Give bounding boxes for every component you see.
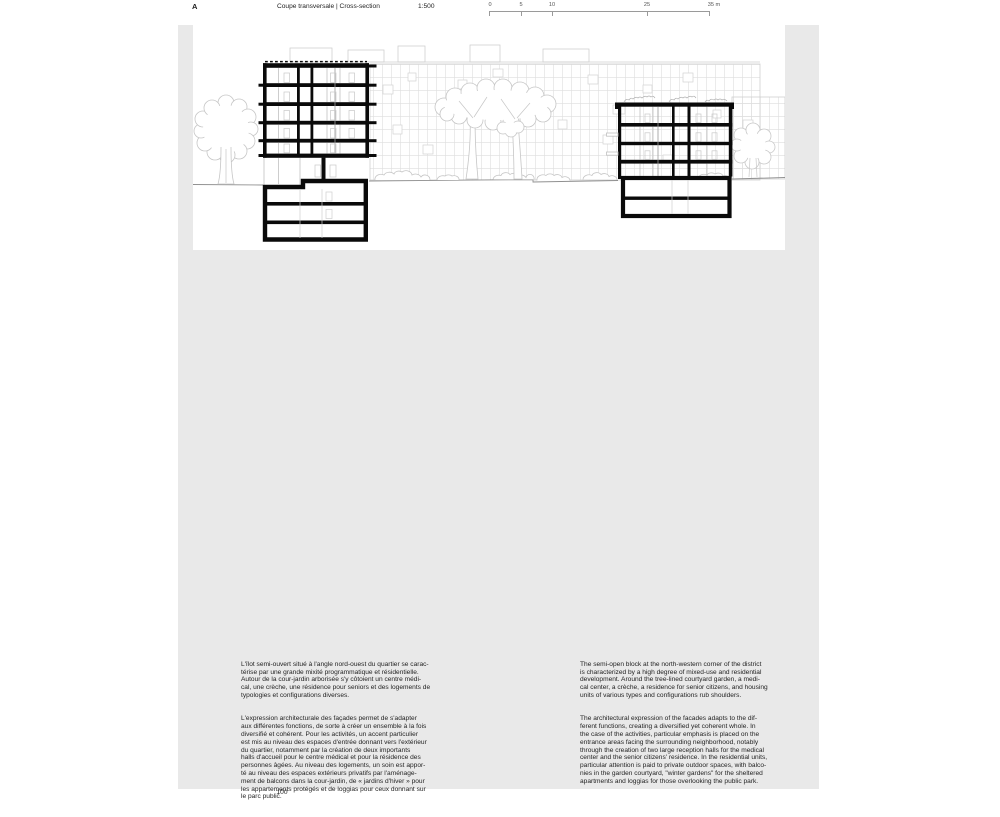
scale-tick-label: 35 m: [708, 2, 720, 8]
text-column-english: The semi-open block at the north-western…: [580, 653, 794, 801]
section-marker: A: [192, 2, 198, 11]
scale-bar-tick: [489, 11, 490, 16]
scale-bar-line: [489, 11, 710, 12]
scale-bar: 0 5 10 25 35 m: [489, 1, 724, 17]
scale-bar-tick: [552, 11, 553, 16]
page-title: Coupe transversale | Cross-section: [277, 3, 380, 10]
cross-section-drawing: [193, 25, 785, 250]
scale-bar-tick: [521, 11, 522, 16]
scale-bar-tick: [709, 11, 710, 16]
scale-tick-label: 25: [644, 2, 650, 8]
scale-tick-label: 0: [488, 2, 491, 8]
left-tree: [194, 95, 258, 184]
page-number: 100: [262, 789, 302, 796]
english-paragraph-2: The architectural expression of the faca…: [580, 715, 794, 785]
scale-label: 1:500: [418, 3, 435, 10]
scale-tick-label: 10: [549, 2, 555, 8]
left-building-section: [259, 62, 377, 240]
french-paragraph-1: L'îlot semi-ouvert situé à l'angle nord-…: [241, 661, 459, 700]
cross-section-panel: [193, 25, 785, 250]
background-rooftops: [290, 45, 589, 62]
scale-tick-label: 5: [519, 2, 522, 8]
scale-bar-tick: [647, 11, 648, 16]
english-paragraph-1: The semi-open block at the north-western…: [580, 661, 794, 700]
